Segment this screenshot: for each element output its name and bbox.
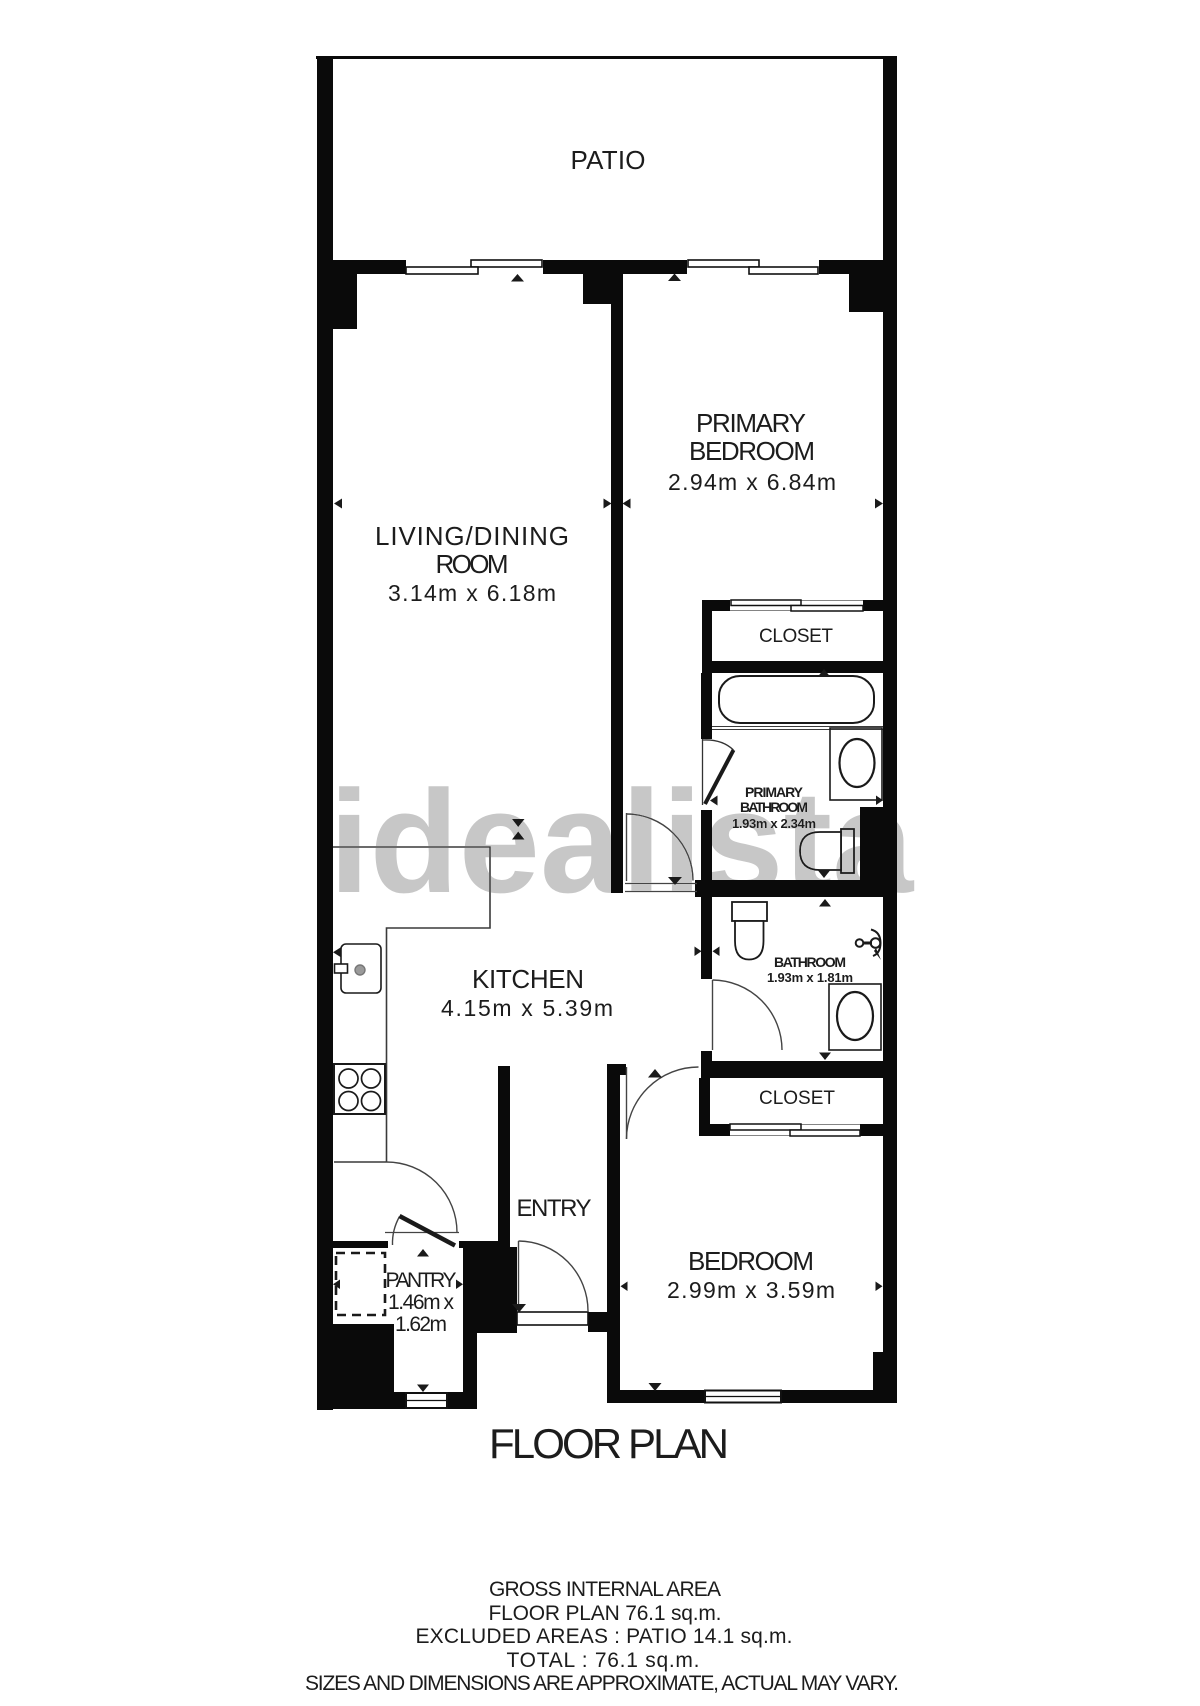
svg-text:TOTAL : 76.1 sq.m.: TOTAL : 76.1 sq.m. xyxy=(507,1649,700,1672)
svg-text:1.46m x: 1.46m x xyxy=(388,1291,455,1314)
svg-text:LIVING/DINING: LIVING/DINING xyxy=(375,521,569,551)
svg-text:SIZES AND DIMENSIONS ARE APPRO: SIZES AND DIMENSIONS ARE APPROXIMATE, AC… xyxy=(305,1672,899,1695)
svg-text:CLOSET: CLOSET xyxy=(759,626,833,647)
svg-text:FLOOR PLAN: FLOOR PLAN xyxy=(489,1420,729,1467)
svg-text:3.14m x 6.18m: 3.14m x 6.18m xyxy=(388,580,556,606)
svg-text:PRIMARY: PRIMARY xyxy=(696,408,806,438)
svg-text:KITCHEN: KITCHEN xyxy=(472,964,584,994)
svg-text:2.99m x 3.59m: 2.99m x 3.59m xyxy=(667,1277,835,1303)
svg-text:2.94m x 6.84m: 2.94m x 6.84m xyxy=(668,469,836,495)
svg-text:EXCLUDED AREAS : PATIO 14.1 s: EXCLUDED AREAS : PATIO 14.1 sq.m. xyxy=(416,1625,793,1648)
svg-text:CLOSET: CLOSET xyxy=(759,1088,835,1109)
svg-text:1.62m: 1.62m xyxy=(395,1313,447,1336)
svg-text:FLOOR PLAN 76.1 sq.m.: FLOOR PLAN 76.1 sq.m. xyxy=(489,1602,722,1625)
svg-text:ROOM: ROOM xyxy=(436,549,509,579)
svg-text:PATIO: PATIO xyxy=(571,145,646,175)
svg-text:ENTRY: ENTRY xyxy=(517,1195,592,1222)
svg-text:PANTRY: PANTRY xyxy=(386,1269,457,1292)
svg-text:BATHROOM: BATHROOM xyxy=(774,954,846,970)
svg-text:1.93m x 1.81m: 1.93m x 1.81m xyxy=(767,970,853,985)
svg-text:BEDROOM: BEDROOM xyxy=(689,436,815,466)
svg-text:BEDROOM: BEDROOM xyxy=(688,1246,814,1276)
svg-text:GROSS INTERNAL AREA: GROSS INTERNAL AREA xyxy=(489,1578,721,1601)
svg-text:4.15m x 5.39m: 4.15m x 5.39m xyxy=(441,995,613,1021)
